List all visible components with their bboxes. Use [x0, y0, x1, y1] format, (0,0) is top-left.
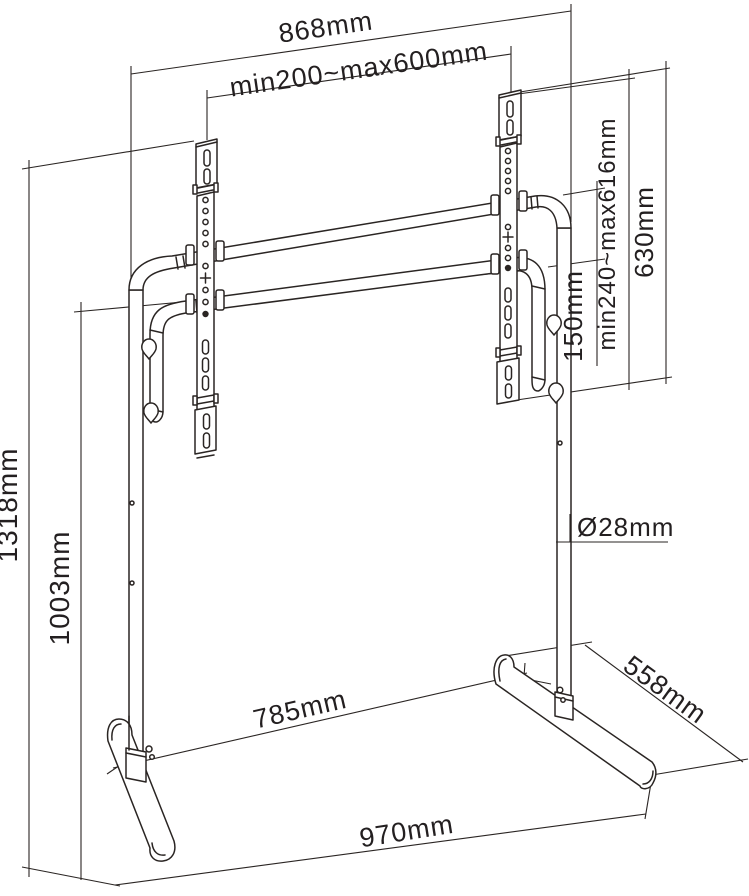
left-foot-screw [146, 746, 152, 752]
dim-label-total-height: 1318mm [0, 448, 23, 563]
stand-technical-drawing: 868mm min200~max600mm min240~max616mm 63… [0, 0, 749, 896]
left-bracket-filled-hole [202, 311, 208, 317]
dim-label-vesa-height: min240~max616mm [594, 117, 621, 350]
ext-bottom-floor [22, 867, 120, 886]
stand-structure [108, 90, 656, 861]
dim-label-vesa-width: min200~max600mm [228, 36, 490, 103]
ext-total-height-top [22, 141, 194, 169]
dim-label-pole-diameter: Ø28mm [577, 512, 674, 542]
dim-label-bracket-height: 630mm [629, 186, 659, 278]
left-vesa-bracket [193, 139, 218, 458]
dim-label-top-width: 868mm [277, 5, 375, 48]
left-foot-screw [150, 755, 155, 760]
dimline-feet-span [113, 673, 527, 768]
right-pole-foot-sleeve [555, 692, 573, 720]
ext-right-top-inner [518, 78, 635, 94]
ext-foot-depth-top [505, 642, 592, 656]
dim-label-crossbar-spacing: 150mm [558, 270, 588, 362]
dim-label-feet-span: 785mm [250, 684, 349, 735]
dimension-labels: 868mm min200~max600mm min240~max616mm 63… [0, 5, 713, 853]
right-foot-screw [557, 687, 563, 693]
stand-technical-drawing-page: 868mm min200~max600mm min240~max616mm 63… [0, 0, 749, 896]
right-bracket-extension [497, 358, 519, 404]
right-bracket-filled-hole [505, 265, 511, 271]
left-bracket-extension [195, 406, 216, 454]
dim-label-pole-height: 1003mm [44, 531, 75, 646]
ext-foot-depth-bottom [652, 759, 748, 775]
dim-label-foot-depth: 558mm [618, 650, 713, 730]
right-vesa-bracket [496, 90, 521, 404]
left-pole [129, 290, 143, 754]
right-foot-screw [561, 698, 565, 702]
ext-right-top-outer [520, 68, 670, 92]
right-bracket-rail [500, 143, 517, 362]
dim-label-base-width: 970mm [357, 809, 456, 853]
